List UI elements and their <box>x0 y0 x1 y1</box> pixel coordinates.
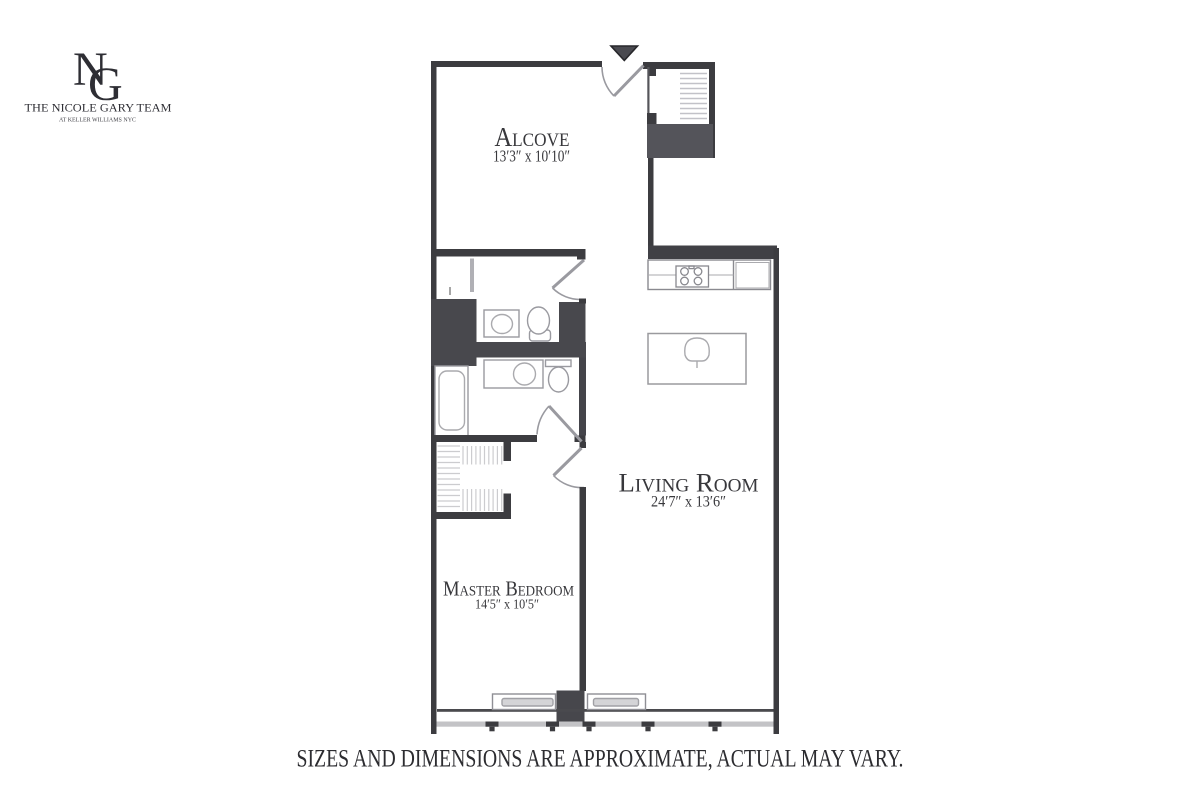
svg-text:THE NICOLE GARY TEAM: THE NICOLE GARY TEAM <box>25 101 172 115</box>
svg-text:13′3″ x 10′10″: 13′3″ x 10′10″ <box>493 147 570 166</box>
svg-text:AT KELLER WILLIAMS NYC: AT KELLER WILLIAMS NYC <box>59 117 136 124</box>
svg-text:SIZES AND DIMENSIONS ARE APPRO: SIZES AND DIMENSIONS ARE APPROXIMATE, AC… <box>297 746 904 773</box>
svg-text:14′5″ x 10′5″: 14′5″ x 10′5″ <box>475 597 539 612</box>
svg-text:24′7″ x 13′6″: 24′7″ x 13′6″ <box>651 494 726 511</box>
